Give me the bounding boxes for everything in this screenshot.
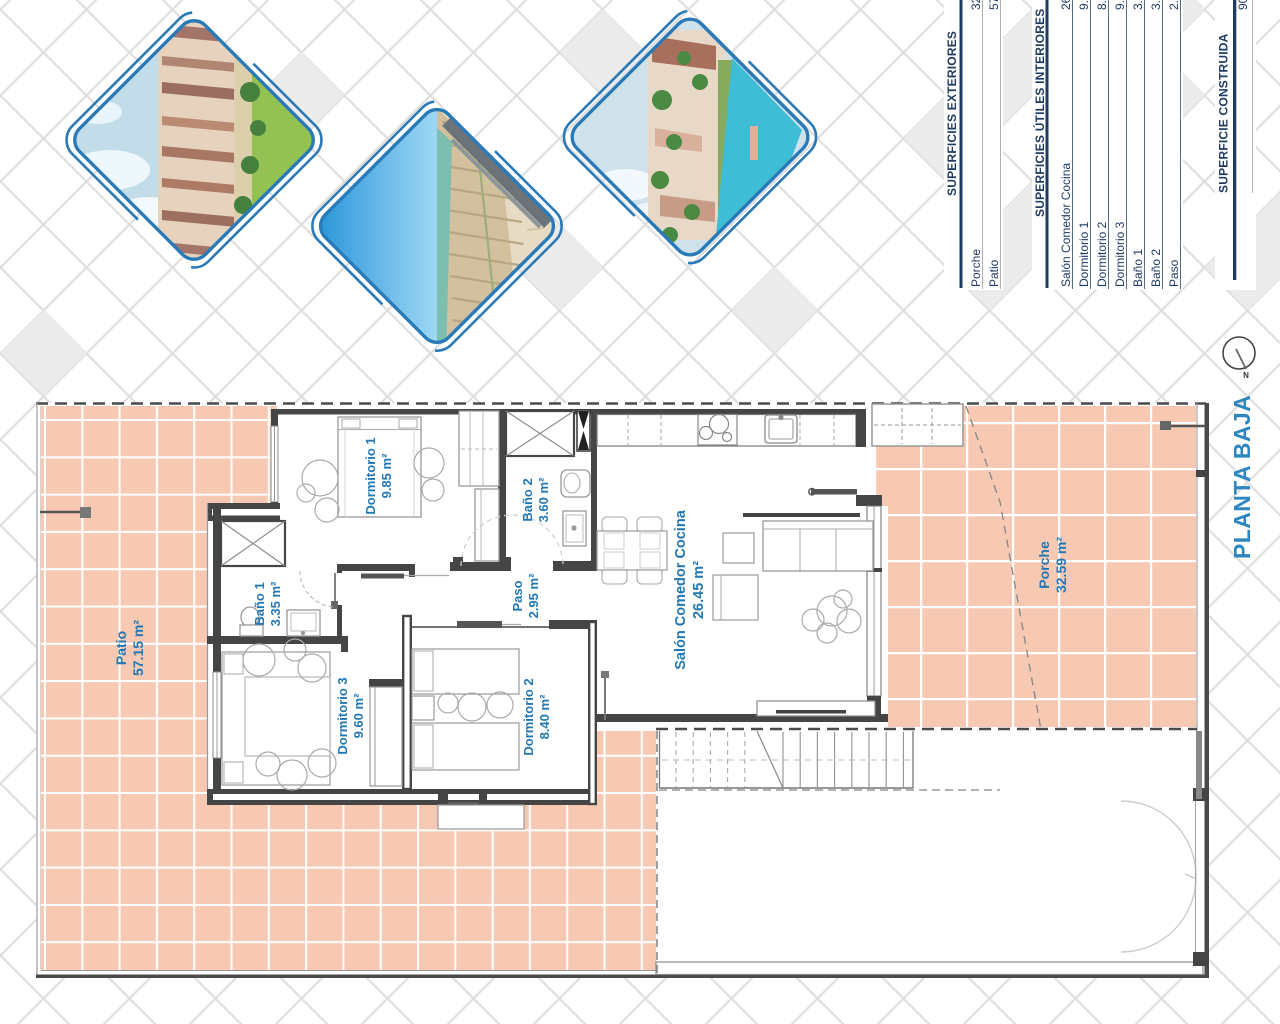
svg-text:SUPERFICIE CONSTRUIDA: SUPERFICIE CONSTRUIDA [1217, 33, 1231, 193]
svg-text:PLANTA BAJA: PLANTA BAJA [1229, 395, 1255, 559]
svg-text:32.59 m²: 32.59 m² [969, 0, 983, 10]
svg-text:32.59 m²: 32.59 m² [1053, 537, 1069, 593]
svg-text:Baño 1: Baño 1 [252, 582, 267, 625]
svg-text:3.60 m²: 3.60 m² [1149, 0, 1163, 10]
svg-text:3.35 m²: 3.35 m² [268, 581, 283, 626]
svg-text:Baño 2: Baño 2 [520, 478, 535, 521]
svg-text:Patio: Patio [113, 631, 129, 665]
svg-text:Dormitorio 1: Dormitorio 1 [1077, 221, 1091, 287]
svg-text:8.40 m²: 8.40 m² [537, 694, 552, 739]
svg-text:Salón Comedor Cocina: Salón Comedor Cocina [1059, 163, 1073, 287]
svg-text:9.85 m²: 9.85 m² [379, 453, 394, 498]
svg-text:Baño 2: Baño 2 [1149, 249, 1163, 287]
svg-text:3.35 m²: 3.35 m² [1131, 0, 1145, 10]
svg-text:2.95 m²: 2.95 m² [1167, 0, 1181, 10]
svg-text:26.45 m²: 26.45 m² [1059, 0, 1073, 10]
svg-text:Dormitorio 1: Dormitorio 1 [363, 437, 378, 514]
svg-text:Dormitorio 3: Dormitorio 3 [335, 677, 350, 754]
svg-text:3.60 m²: 3.60 m² [536, 477, 551, 522]
svg-text:SUPERFICIES ÚTILES INTERIORES: SUPERFICIES ÚTILES INTERIORES [1032, 9, 1047, 218]
svg-text:Paso: Paso [1167, 259, 1181, 287]
svg-text:Salón Comedor Cocina: Salón Comedor Cocina [673, 509, 689, 669]
svg-text:Paso: Paso [510, 580, 525, 611]
svg-text:Dormitorio 2: Dormitorio 2 [521, 678, 536, 755]
svg-text:90.10 m²: 90.10 m² [1236, 0, 1250, 10]
svg-text:Porche: Porche [1036, 541, 1052, 589]
svg-text:N: N [1243, 371, 1249, 380]
svg-text:Patio: Patio [987, 259, 1001, 287]
svg-text:57.15 m²: 57.15 m² [987, 0, 1001, 10]
svg-text:57.15 m²: 57.15 m² [130, 620, 146, 676]
svg-text:Porche: Porche [969, 249, 983, 287]
svg-text:SUPERFICIES EXTERIORES: SUPERFICIES EXTERIORES [945, 31, 959, 196]
svg-text:2.95 m²: 2.95 m² [526, 573, 541, 618]
svg-text:26.45 m²: 26.45 m² [691, 561, 707, 619]
svg-text:Dormitorio 3: Dormitorio 3 [1113, 221, 1127, 287]
svg-text:9.85 m²: 9.85 m² [1077, 0, 1091, 10]
svg-text:Baño 1: Baño 1 [1131, 249, 1145, 287]
svg-text:9.60 m²: 9.60 m² [351, 693, 366, 738]
svg-text:Dormitorio 2: Dormitorio 2 [1095, 221, 1109, 287]
svg-text:8.40 m²: 8.40 m² [1095, 0, 1109, 10]
svg-text:9.60 m²: 9.60 m² [1113, 0, 1127, 10]
